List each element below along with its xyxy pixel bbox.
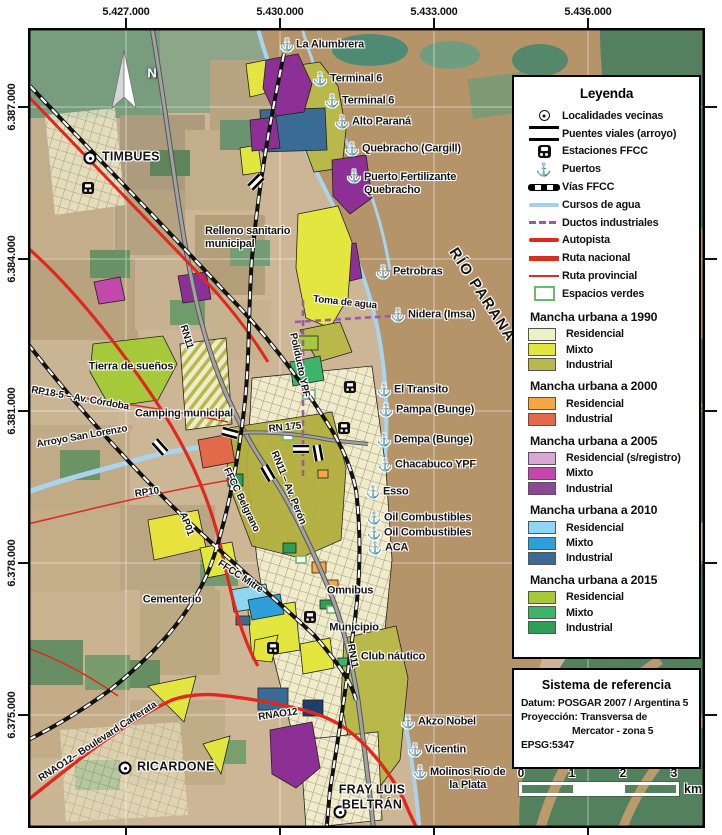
legend-item-label: Puertos [562,163,601,175]
legend-item-ruta-provincial: Ruta provincial [514,267,699,285]
legend-item-estaciones: Estaciones FFCC [514,143,699,161]
water-line-icon [529,203,559,207]
legend-item-label: Ruta provincial [562,270,637,282]
legend-item-localidades: Localidades vecinas [514,107,699,125]
provincial-road-line-icon [529,275,559,277]
legend-item-label: Ductos industriales [562,217,658,229]
axis-tick [18,106,28,108]
reference-epsg: EPSG:5347 [521,740,699,751]
axis-tick [18,562,28,564]
legend-item-vias-ffcc: Vías FFCC [514,178,699,196]
anchor-icon: ⚓ [366,485,381,499]
swatch-label: Mixto [566,537,593,549]
swatch-label: Mixto [566,607,593,619]
scale-bar [519,782,679,796]
anchor-icon: ⚓ [536,163,552,176]
place-label: Camping municipal [135,408,233,421]
color-swatch [528,328,556,341]
color-swatch [528,467,556,480]
legend-swatch-row: Mixto [514,342,699,357]
legend-item-autopista: Autopista [514,232,699,250]
national-road-line-icon [529,256,559,261]
map-sheet: 5.427.000 5.430.000 5.433.000 5.436.000 … [0,0,722,835]
port-label: Nidera (Imsa) [408,309,475,322]
legend-item-label: Puentes viales (arroyo) [562,128,676,140]
legend-swatch-row: Residencial [514,520,699,535]
anchor-icon: ⚓ [378,458,393,472]
color-swatch [528,358,556,371]
legend-swatch-row: Mixto [514,535,699,550]
place-label: Relleno sanitario municipal [205,225,290,251]
axis-left-tick-label: 6.378.000 [6,539,18,586]
anchor-icon: ⚓ [313,72,328,86]
swatch-label: Residencial [566,328,624,340]
place-label: Tierra de sueños [89,361,174,374]
scale-segment [522,785,573,793]
legend-item-label: Autopista [562,234,610,246]
anchor-icon: ⚓ [379,403,394,417]
swatch-label: Industrial [566,622,613,634]
axis-tick [705,106,717,108]
axis-top-tick-label: 5.427.000 [102,6,149,18]
locality-marker [84,152,97,165]
reference-panel: Sistema de referencia Datum: POSGAR 2007… [512,668,701,769]
color-swatch [528,552,556,565]
axis-tick [279,828,281,835]
anchor-icon: ⚓ [345,142,360,156]
anchor-icon: ⚓ [377,433,392,447]
legend-swatch-row: Residencial [514,590,699,605]
port-label: Dempa (Bunge) [394,434,473,447]
axis-top-tick-label: 5.436.000 [564,6,611,18]
swatch-label: Industrial [566,359,613,371]
reference-projection: Proyección: Transversa de [521,712,699,723]
color-swatch [528,452,556,465]
locality-label: TIMBUES [102,150,160,165]
legend-swatch-row: Residencial [514,327,699,342]
axis-tick [18,258,28,260]
port-label: Akzo Nobel [418,716,476,729]
axis-top-tick-label: 5.433.000 [410,6,457,18]
legend-group-title: Mancha urbana a 1990 [530,310,699,324]
legend-item-label: Ruta nacional [562,252,630,264]
highway-line-icon [529,238,559,242]
color-swatch [528,537,556,550]
locality-label: RICARDONE [137,760,215,775]
legend-item-puertos: ⚓ Puertos [514,160,699,178]
reference-projection-2: Mercator - zona 5 [572,726,699,737]
bridge-icon [529,126,559,141]
axis-tick [279,18,281,28]
railway-icon [528,184,560,191]
train-station-icon [538,145,551,158]
anchor-icon: ⚓ [335,115,350,129]
legend-swatch-row: Industrial [514,357,699,372]
port-label: Molinos Río de la Plata [430,766,505,792]
anchor-icon: ⚓ [367,526,382,540]
swatch-label: Residencial [566,522,624,534]
anchor-icon: ⚓ [391,308,406,322]
legend-item-label: Cursos de agua [562,199,640,211]
place-label: Municipio [329,622,379,635]
color-swatch [528,343,556,356]
axis-tick [18,410,28,412]
legend-swatch-row: Industrial [514,481,699,496]
axis-tick [587,18,589,28]
axis-tick [705,714,717,716]
legend-group-title: Mancha urbana a 2015 [530,573,699,587]
port-label: Oil Combustibles [384,527,471,540]
duct-line-icon [529,221,559,225]
port-label: ACA [385,542,408,555]
legend-item-label: Estaciones FFCC [562,145,648,157]
anchor-icon: ⚓ [401,715,416,729]
legend-item-ductos: Ductos industriales [514,214,699,232]
port-label: El Transito [394,384,448,397]
legend-item-puentes: Puentes viales (arroyo) [514,125,699,143]
port-label: Pampa (Bunge) [396,404,474,417]
color-swatch [528,397,556,410]
place-label: Cementerio [143,594,202,607]
locality-marker-icon [539,110,550,121]
legend-item-espacios-verdes: Espacios verdes [514,285,699,303]
legend-group-title: Mancha urbana a 2010 [530,503,699,517]
scale-segment [625,785,676,793]
port-label: Puerto Fertilizante Quebracho [364,171,456,197]
legend-swatch-row: Industrial [514,620,699,635]
axis-left-tick-label: 6.381.000 [6,387,18,434]
color-swatch [528,591,556,604]
legend-group-title: Mancha urbana a 2000 [530,379,699,393]
port-label: Petrobras [393,266,443,279]
north-label: N [147,65,156,80]
axis-left-tick-label: 6.375.000 [6,691,18,738]
port-label: Esso [383,486,409,499]
axis-top-tick-label: 5.430.000 [256,6,303,18]
axis-tick [705,562,717,564]
legend-item-label: Localidades vecinas [562,110,663,122]
swatch-label: Mixto [566,344,593,356]
axis-tick [587,828,589,835]
legend-panel: Leyenda Localidades vecinas Puentes vial… [512,75,701,659]
anchor-icon: ⚓ [347,169,362,183]
color-swatch [528,413,556,426]
anchor-icon: ⚓ [377,383,392,397]
swatch-label: Industrial [566,552,613,564]
anchor-icon: ⚓ [325,94,340,108]
reference-title: Sistema de referencia [514,678,699,692]
axis-tick [433,828,435,835]
axis-tick [433,18,435,28]
axis-left-tick-label: 6.384.000 [6,235,18,282]
port-label: La Alumbrera [296,39,364,52]
axis-tick [125,828,127,835]
color-swatch [528,521,556,534]
color-swatch [528,482,556,495]
swatch-label: Residencial (s/registro) [566,452,681,464]
legend-swatch-row: Mixto [514,605,699,620]
legend-swatch-row: Residencial [514,396,699,411]
legend-group-title: Mancha urbana a 2005 [530,434,699,448]
legend-swatch-row: Residencial (s/registro) [514,451,699,466]
reference-datum: Datum: POSGAR 2007 / Argentina 5 [521,698,699,709]
port-label: Oil Combustibles [384,512,471,525]
axis-tick [705,258,717,260]
color-swatch [528,621,556,634]
legend-item-label: Vías FFCC [562,181,614,193]
place-label: Omnibus [327,585,373,598]
legend-item-cursos-agua: Cursos de agua [514,196,699,214]
swatch-label: Residencial [566,591,624,603]
port-label: Terminal 6 [342,95,394,108]
legend-swatch-row: Industrial [514,551,699,566]
legend-swatch-row: Mixto [514,466,699,481]
swatch-label: Mixto [566,467,593,479]
axis-tick [705,410,717,412]
color-swatch [528,606,556,619]
port-label: Terminal 6 [330,73,382,86]
port-label: Quebracho (Cargill) [362,143,461,156]
place-label: Club náutico [361,651,425,664]
locality-marker [119,762,132,775]
scale-unit-label: km [684,782,702,796]
scale-segment [573,785,624,793]
anchor-icon: ⚓ [280,38,295,52]
port-label: Alto Paraná [352,116,411,129]
locality-label: FRAY LUIS BELTRÁN [339,782,405,812]
port-label: Vicentin [425,744,466,757]
anchor-icon: ⚓ [367,511,382,525]
port-label: Chacabuco YPF [395,459,476,472]
axis-left-tick-label: 6.387.000 [6,83,18,130]
swatch-label: Industrial [566,483,613,495]
swatch-label: Residencial [566,398,624,410]
swatch-label: Industrial [566,413,613,425]
axis-tick [125,18,127,28]
legend-item-label: Espacios verdes [562,288,644,300]
green-space-icon [534,286,555,301]
anchor-icon: ⚓ [368,541,383,555]
anchor-icon: ⚓ [376,265,391,279]
anchor-icon: ⚓ [413,765,428,779]
legend-swatch-row: Industrial [514,412,699,427]
legend-title: Leyenda [514,86,699,101]
axis-tick [18,714,28,716]
anchor-icon: ⚓ [408,743,423,757]
legend-item-ruta-nacional: Ruta nacional [514,249,699,267]
